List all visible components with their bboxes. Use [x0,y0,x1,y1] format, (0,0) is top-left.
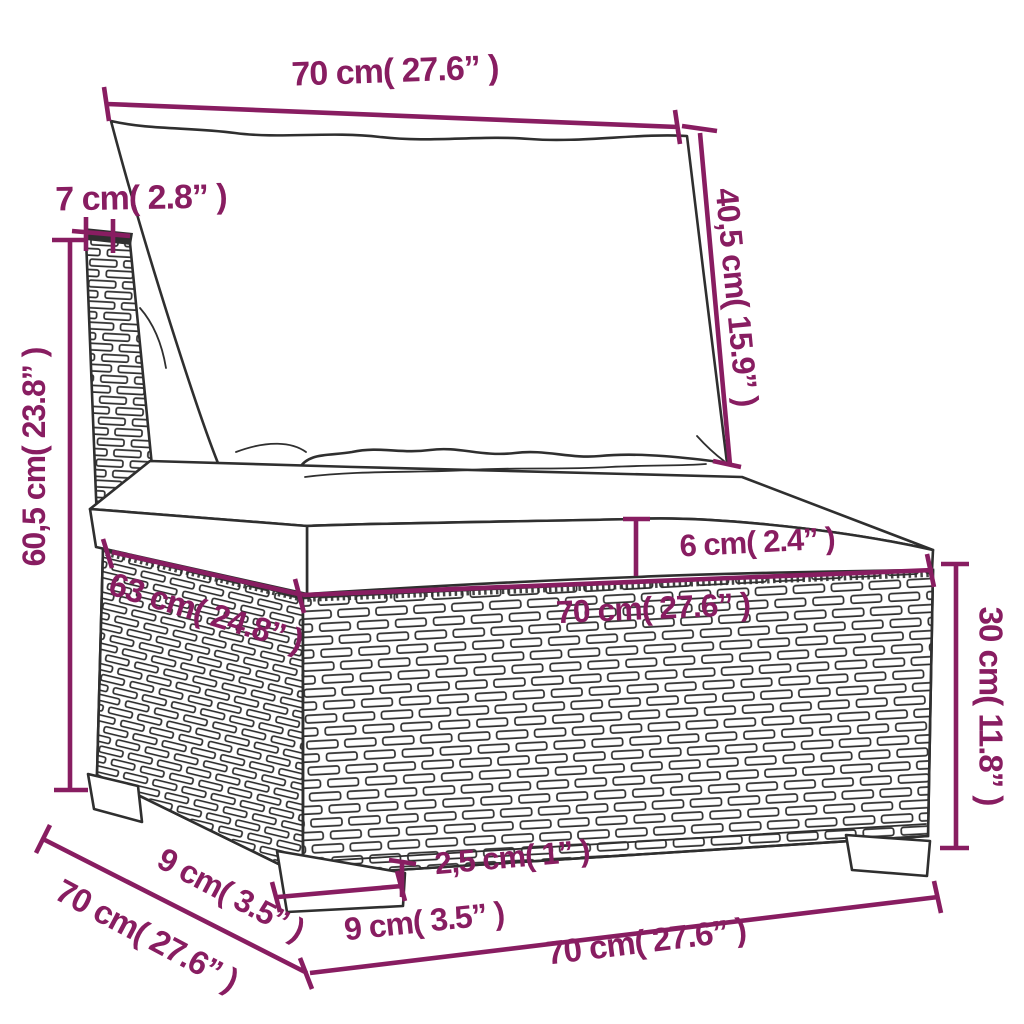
back-cushion [111,121,727,474]
dim-label-post-top-width: 7 cm( 2.8” ) [55,180,227,217]
leg-front-right [846,835,930,876]
dim-label-top-width: 70 cm( 27.6” ) [291,50,499,91]
dim-label-total-height: 60,5 cm( 23.8” ) [18,348,50,567]
furniture-group [84,121,933,912]
dim-label-cushion-thickness: 6 cm( 2.4” ) [679,522,836,561]
dim-label-base-height: 30 cm( 11.8” ) [975,607,1008,806]
dim-label-seat-width: 70 cm( 27.6” ) [555,588,750,628]
dimension-diagram: 70 cm( 27.6” ) 7 cm( 2.8” ) 40,5 cm( 15.… [0,0,1024,1024]
